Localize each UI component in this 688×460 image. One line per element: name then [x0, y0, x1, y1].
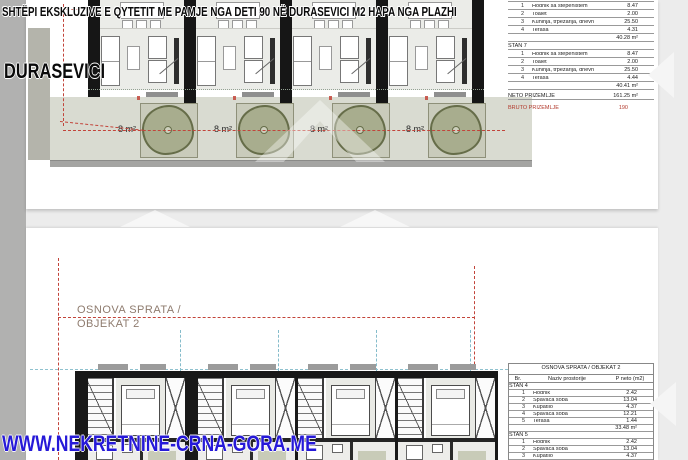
row-number: 3 — [508, 20, 526, 26]
real-estate-flyer: 8 m² 8 m² 8 m² 8 m² OSNOVA SPRATA / OBJE… — [0, 0, 688, 460]
apartment-label-row: STAN 5 — [509, 432, 653, 439]
column-header: Naziv prostorije — [527, 377, 607, 383]
section-total-row: 33.48 m² — [509, 425, 653, 432]
red-dashed-line — [63, 130, 505, 131]
door-lintel — [146, 92, 178, 97]
chair — [232, 20, 243, 29]
wall — [450, 442, 453, 460]
room-area: 4.37 — [593, 454, 653, 460]
armchair — [436, 36, 455, 59]
table-row: 2 Spavaća soba 13.04 — [509, 446, 653, 453]
room-name: Kupatilo — [527, 454, 593, 460]
terrace-planter — [458, 451, 486, 460]
watermark-shape — [340, 210, 410, 227]
row-number: 4 — [508, 76, 526, 82]
table-row: 4 Spavaća soba 12.21 — [509, 411, 653, 418]
side-table — [319, 46, 332, 70]
apartment-label: STAN 7 — [508, 44, 527, 50]
window-lintel — [98, 364, 128, 370]
armchair — [244, 60, 263, 83]
room-name: Kuhinja, trpezarija, dnevna — [526, 20, 594, 26]
room-name: Toalet — [526, 60, 594, 66]
window-lintel — [308, 364, 338, 370]
column-header: P neto (m2) — [607, 377, 653, 383]
apartment-label: STAN 5 — [509, 433, 528, 439]
chair — [136, 20, 147, 29]
side-wall — [28, 28, 50, 160]
stairs — [88, 378, 114, 438]
terrace-area-label: 8 m² — [200, 124, 232, 134]
section-line — [88, 89, 484, 90]
table-row: 2 Toalet 2.00 — [508, 58, 654, 66]
sofa — [389, 36, 408, 86]
chair — [342, 20, 353, 29]
room-name: Hodnik sa stepeništem — [526, 4, 594, 10]
neto-row: NETO PRIZEMLJE 161.25 m² — [508, 90, 654, 100]
wall — [350, 442, 353, 460]
stair-shaft — [275, 378, 295, 438]
table-row: 3 Kupatilo 4.37 — [509, 453, 653, 460]
side-table — [223, 46, 236, 70]
red-mark — [329, 96, 332, 100]
section-total: 33.48 m² — [593, 426, 653, 432]
bruto-value: 190 — [584, 106, 654, 112]
row-number: 2 — [509, 398, 527, 404]
armchair — [340, 36, 359, 59]
chair — [314, 20, 325, 29]
window-lintel — [140, 364, 166, 370]
door-lintel — [434, 92, 466, 97]
axis-dashed-line — [180, 330, 181, 371]
red-dashed-line — [58, 258, 59, 460]
neto-value: 161.25 m² — [594, 94, 654, 100]
axis-dashed-line — [278, 330, 279, 371]
armchair — [244, 36, 263, 59]
stair-shaft — [165, 378, 185, 438]
terrace-area-label: 8 m² — [296, 124, 328, 134]
table-row: 3 Kupatilo 4.37 — [509, 404, 653, 411]
window-lintel — [450, 364, 476, 370]
table-row: 4 Terasa 4.31 — [508, 26, 654, 34]
armchair — [340, 60, 359, 83]
room-area: 25.50 — [594, 68, 654, 74]
room-area: 25.50 — [594, 20, 654, 26]
axis-dashed-line — [376, 330, 377, 371]
room-name: Hodnik — [527, 391, 593, 397]
table-row: 1 Hodnik sa stepeništem 8.47 — [508, 50, 654, 58]
row-number: 2 — [508, 60, 526, 66]
red-mark — [425, 96, 428, 100]
room-name: Hodnik — [527, 440, 593, 446]
row-number: 3 — [508, 68, 526, 74]
bed — [231, 385, 270, 436]
chair — [424, 20, 435, 29]
table-row: 4 Terasa 4.44 — [508, 74, 654, 82]
chair — [410, 20, 421, 29]
chair — [438, 20, 449, 29]
room-name: Toalet — [526, 12, 594, 18]
armchair — [436, 60, 455, 83]
table-row: 1 Hodnik sa stepeništem 8.47 — [508, 2, 654, 10]
room-name: Spavaća soba — [527, 398, 593, 404]
row-number: 1 — [508, 4, 526, 10]
table-row: 3 Kuhinja, trpezarija, dnevna 25.50 — [508, 18, 654, 26]
room-area: 2.00 — [594, 12, 654, 18]
section-total-row: 40.28 m² — [508, 34, 654, 42]
chair — [150, 20, 161, 29]
apartment-label: STAN 4 — [509, 384, 528, 390]
floor-plan-title-line2: OBJEKAT 2 — [77, 318, 140, 330]
room-name: Terasa — [527, 419, 593, 425]
stair-shaft — [375, 378, 395, 438]
watermark-shape — [120, 210, 190, 227]
stair-shaft — [475, 378, 495, 438]
table-title: OSNOVA SPRATA / OBJEKAT 2 — [509, 364, 653, 375]
window-lintel — [208, 364, 238, 370]
row-number: 4 — [509, 412, 527, 418]
red-dashed-line — [58, 317, 475, 318]
room-name: Spavaća soba — [527, 447, 593, 453]
location-label: DURASEVICI — [4, 60, 105, 84]
chair — [122, 20, 133, 29]
bathroom-fixture — [406, 445, 423, 460]
bedroom — [326, 378, 375, 438]
bedroom — [426, 378, 475, 438]
armchair — [148, 36, 167, 59]
row-number: 1 — [508, 52, 526, 58]
row-number: 2 — [509, 447, 527, 453]
window-lintel — [350, 364, 376, 370]
row-number: 3 — [509, 405, 527, 411]
bedroom — [116, 378, 165, 438]
door-lintel — [242, 92, 274, 97]
room-area: 2.00 — [594, 60, 654, 66]
room-name: Spavaća soba — [527, 412, 593, 418]
chair — [246, 20, 257, 29]
table-row: 3 Kuhinja, trpezarija, dnevna 25.50 — [508, 66, 654, 74]
room-area: 8.47 — [594, 52, 654, 58]
row-number: 1 — [509, 440, 527, 446]
sofa — [197, 36, 216, 86]
wall — [472, 0, 484, 92]
room-area: 12.21 — [593, 412, 653, 418]
apartment-label-row: STAN 4 — [509, 383, 653, 390]
row-number: 2 — [508, 12, 526, 18]
upper-unit — [398, 378, 495, 460]
room-area: 13.04 — [593, 398, 653, 404]
room-area: 2.42 — [593, 440, 653, 446]
section-total: 40.41 m² — [594, 84, 654, 90]
room-area: 1.44 — [593, 419, 653, 425]
room-name: Terasa — [526, 28, 594, 34]
table-row: 2 Spavaća soba 13.04 — [509, 397, 653, 404]
stairs — [398, 378, 424, 438]
door-lintel — [338, 92, 370, 97]
apartment-label-row: STAN 7 — [508, 42, 654, 50]
bed — [121, 385, 160, 436]
ground-floor-area-table: 1 Hodnik sa stepeništem 8.47 2 Toalet 2.… — [508, 1, 654, 111]
table-row: 2 Toalet 2.00 — [508, 10, 654, 18]
wall-column — [88, 92, 100, 97]
stairs — [198, 378, 224, 438]
bed — [431, 385, 470, 436]
neto-label: NETO PRIZEMLJE — [508, 94, 555, 100]
room-area: 8.47 — [594, 4, 654, 10]
section-total: 40.28 m² — [594, 36, 654, 42]
red-mark — [137, 96, 140, 100]
bathroom-fixture — [432, 444, 443, 453]
room-name: Hodnik sa stepeništem — [526, 52, 594, 58]
sofa — [293, 36, 312, 86]
table-row: 1 Hodnik 2.42 — [509, 390, 653, 397]
room-area: 4.31 — [594, 28, 654, 34]
side-table — [415, 46, 428, 70]
floor-plan-title-line1: OSNOVA SPRATA / — [77, 304, 181, 316]
armchair — [148, 60, 167, 83]
bruto-label: BRUTO PRIZEMLJE — [508, 106, 559, 112]
terrace-planter — [358, 451, 386, 460]
room-name: Terasa — [526, 76, 594, 82]
column-header: Br. — [509, 377, 527, 383]
website-url: WWW.NEKRETNINE-CRNA-GORA.ME — [2, 431, 317, 457]
terrace-area-label: 8 m² — [392, 124, 424, 134]
row-number: 4 — [508, 28, 526, 34]
table-row: 5 Terasa 1.44 — [509, 418, 653, 425]
bed — [331, 385, 370, 436]
room-area: 13.04 — [593, 447, 653, 453]
row-number: 5 — [509, 419, 527, 425]
red-mark — [233, 96, 236, 100]
room-name: Kupatilo — [527, 405, 593, 411]
listing-title: SHTËPI EKSKLUZIVE E QYTETIT ME PAMJE NGA… — [2, 4, 457, 19]
room-area: 2.42 — [593, 391, 653, 397]
row-number: 1 — [509, 391, 527, 397]
window-lintel — [408, 364, 438, 370]
bedroom — [226, 378, 275, 438]
room-area: 4.37 — [593, 405, 653, 411]
bathroom — [398, 442, 495, 460]
upper-floor-area-table: OSNOVA SPRATA / OBJEKAT 2 Br. Naziv pros… — [508, 363, 654, 460]
room-name: Kuhinja, trpezarija, dnevna — [526, 68, 594, 74]
table-row: 1 Hodnik 2.42 — [509, 439, 653, 446]
section-total-row: 40.41 m² — [508, 82, 654, 90]
ground-line — [50, 160, 532, 167]
row-number: 3 — [509, 454, 527, 460]
chair — [218, 20, 229, 29]
window-lintel — [250, 364, 276, 370]
side-table — [127, 46, 140, 70]
bathroom-fixture — [332, 444, 343, 453]
chair — [328, 20, 339, 29]
bruto-row: BRUTO PRIZEMLJE 190 — [508, 100, 654, 111]
column-header-row: Br. Naziv prostorije P neto (m2) — [509, 375, 653, 383]
stairs — [298, 378, 324, 438]
room-area: 4.44 — [594, 76, 654, 82]
